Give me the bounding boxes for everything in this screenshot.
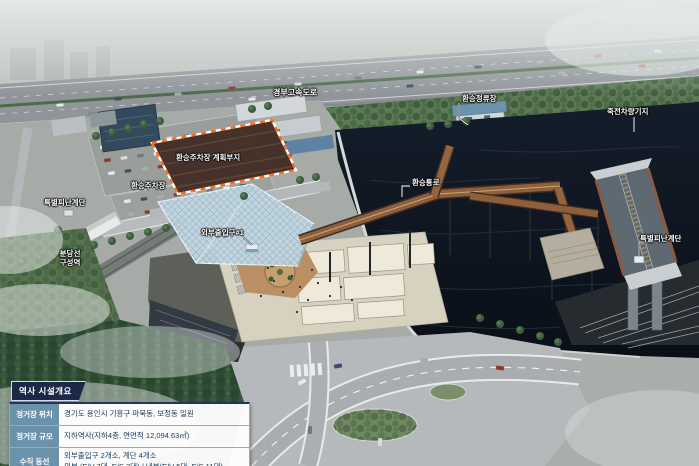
label-parking-plan-site: 환승주차장 계획부지 xyxy=(176,152,240,163)
station-aerial-rendering: 경부고속도로 환승정류장 죽전차량기지 환승주차장 계획부지 환승주차장 특별피… xyxy=(0,0,699,466)
label-expressway: 경부고속도로 xyxy=(273,87,317,98)
table-row-location: 정거장 위치 경기도 용인시 기흥구 마북동, 보정동 일원 xyxy=(10,404,249,425)
row-value: 지하역사(지하4층, 연면적 12,094.63㎡) xyxy=(59,426,249,447)
table-row-scale: 정거장 규모 지하역사(지하4층, 연면적 12,094.63㎡) xyxy=(10,425,249,447)
label-transfer-bus-stop: 환승정류장 xyxy=(462,93,497,104)
table-row-circulation: 수직 동선 외부출입구 2개소, 계단 4개소 외부 (E/V 7대, E/S … xyxy=(10,447,249,466)
row-value-text: 지하역사(지하4층, 연면적 12,094.63㎡) xyxy=(64,431,244,442)
label-bundang-guseong: 분당선 구성역 xyxy=(50,249,90,267)
facility-table: 정거장 위치 경기도 용인시 기흥구 마북동, 보정동 일원 정거장 규모 지하… xyxy=(9,402,250,466)
label-transfer-parking: 환승주차장 xyxy=(131,180,166,191)
facility-overview-panel: 역사 시설개요 정거장 위치 경기도 용인시 기흥구 마북동, 보정동 일원 정… xyxy=(9,381,250,466)
evac-stair-structure-right xyxy=(634,256,644,263)
label-entrance-1: 외부출입구#1 xyxy=(201,227,244,238)
panel-title: 역사 시설개요 xyxy=(11,381,86,401)
label-depot: 죽전차량기지 xyxy=(607,106,648,117)
label-evac-stair-left: 특별피난계단 xyxy=(44,197,85,208)
row-value-text: 경기도 용인시 기흥구 마북동, 보정동 일원 xyxy=(64,409,244,420)
row-label: 정거장 위치 xyxy=(10,404,59,425)
row-value: 경기도 용인시 기흥구 마북동, 보정동 일원 xyxy=(59,404,249,425)
row-label: 정거장 규모 xyxy=(10,426,59,447)
row-label: 수직 동선 xyxy=(10,448,59,466)
label-guseong-station: 구성역 xyxy=(50,258,90,267)
road-interchange xyxy=(218,332,590,466)
label-transfer-corridor: 환승통로 xyxy=(412,177,440,188)
evac-stair-structure-left xyxy=(64,210,73,216)
label-bundang-line: 분당선 xyxy=(50,249,90,258)
row-value-line2: 외부 (E/V 7대, E/S 3대) / 내부(E/V 5대, E/S 11대… xyxy=(64,462,244,466)
row-value-line1: 외부출입구 2개소, 계단 4개소 xyxy=(64,451,244,462)
label-evac-stair-right: 특별피난계단 xyxy=(640,233,681,244)
row-value: 외부출입구 2개소, 계단 4개소 외부 (E/V 7대, E/S 3대) / … xyxy=(59,448,249,466)
